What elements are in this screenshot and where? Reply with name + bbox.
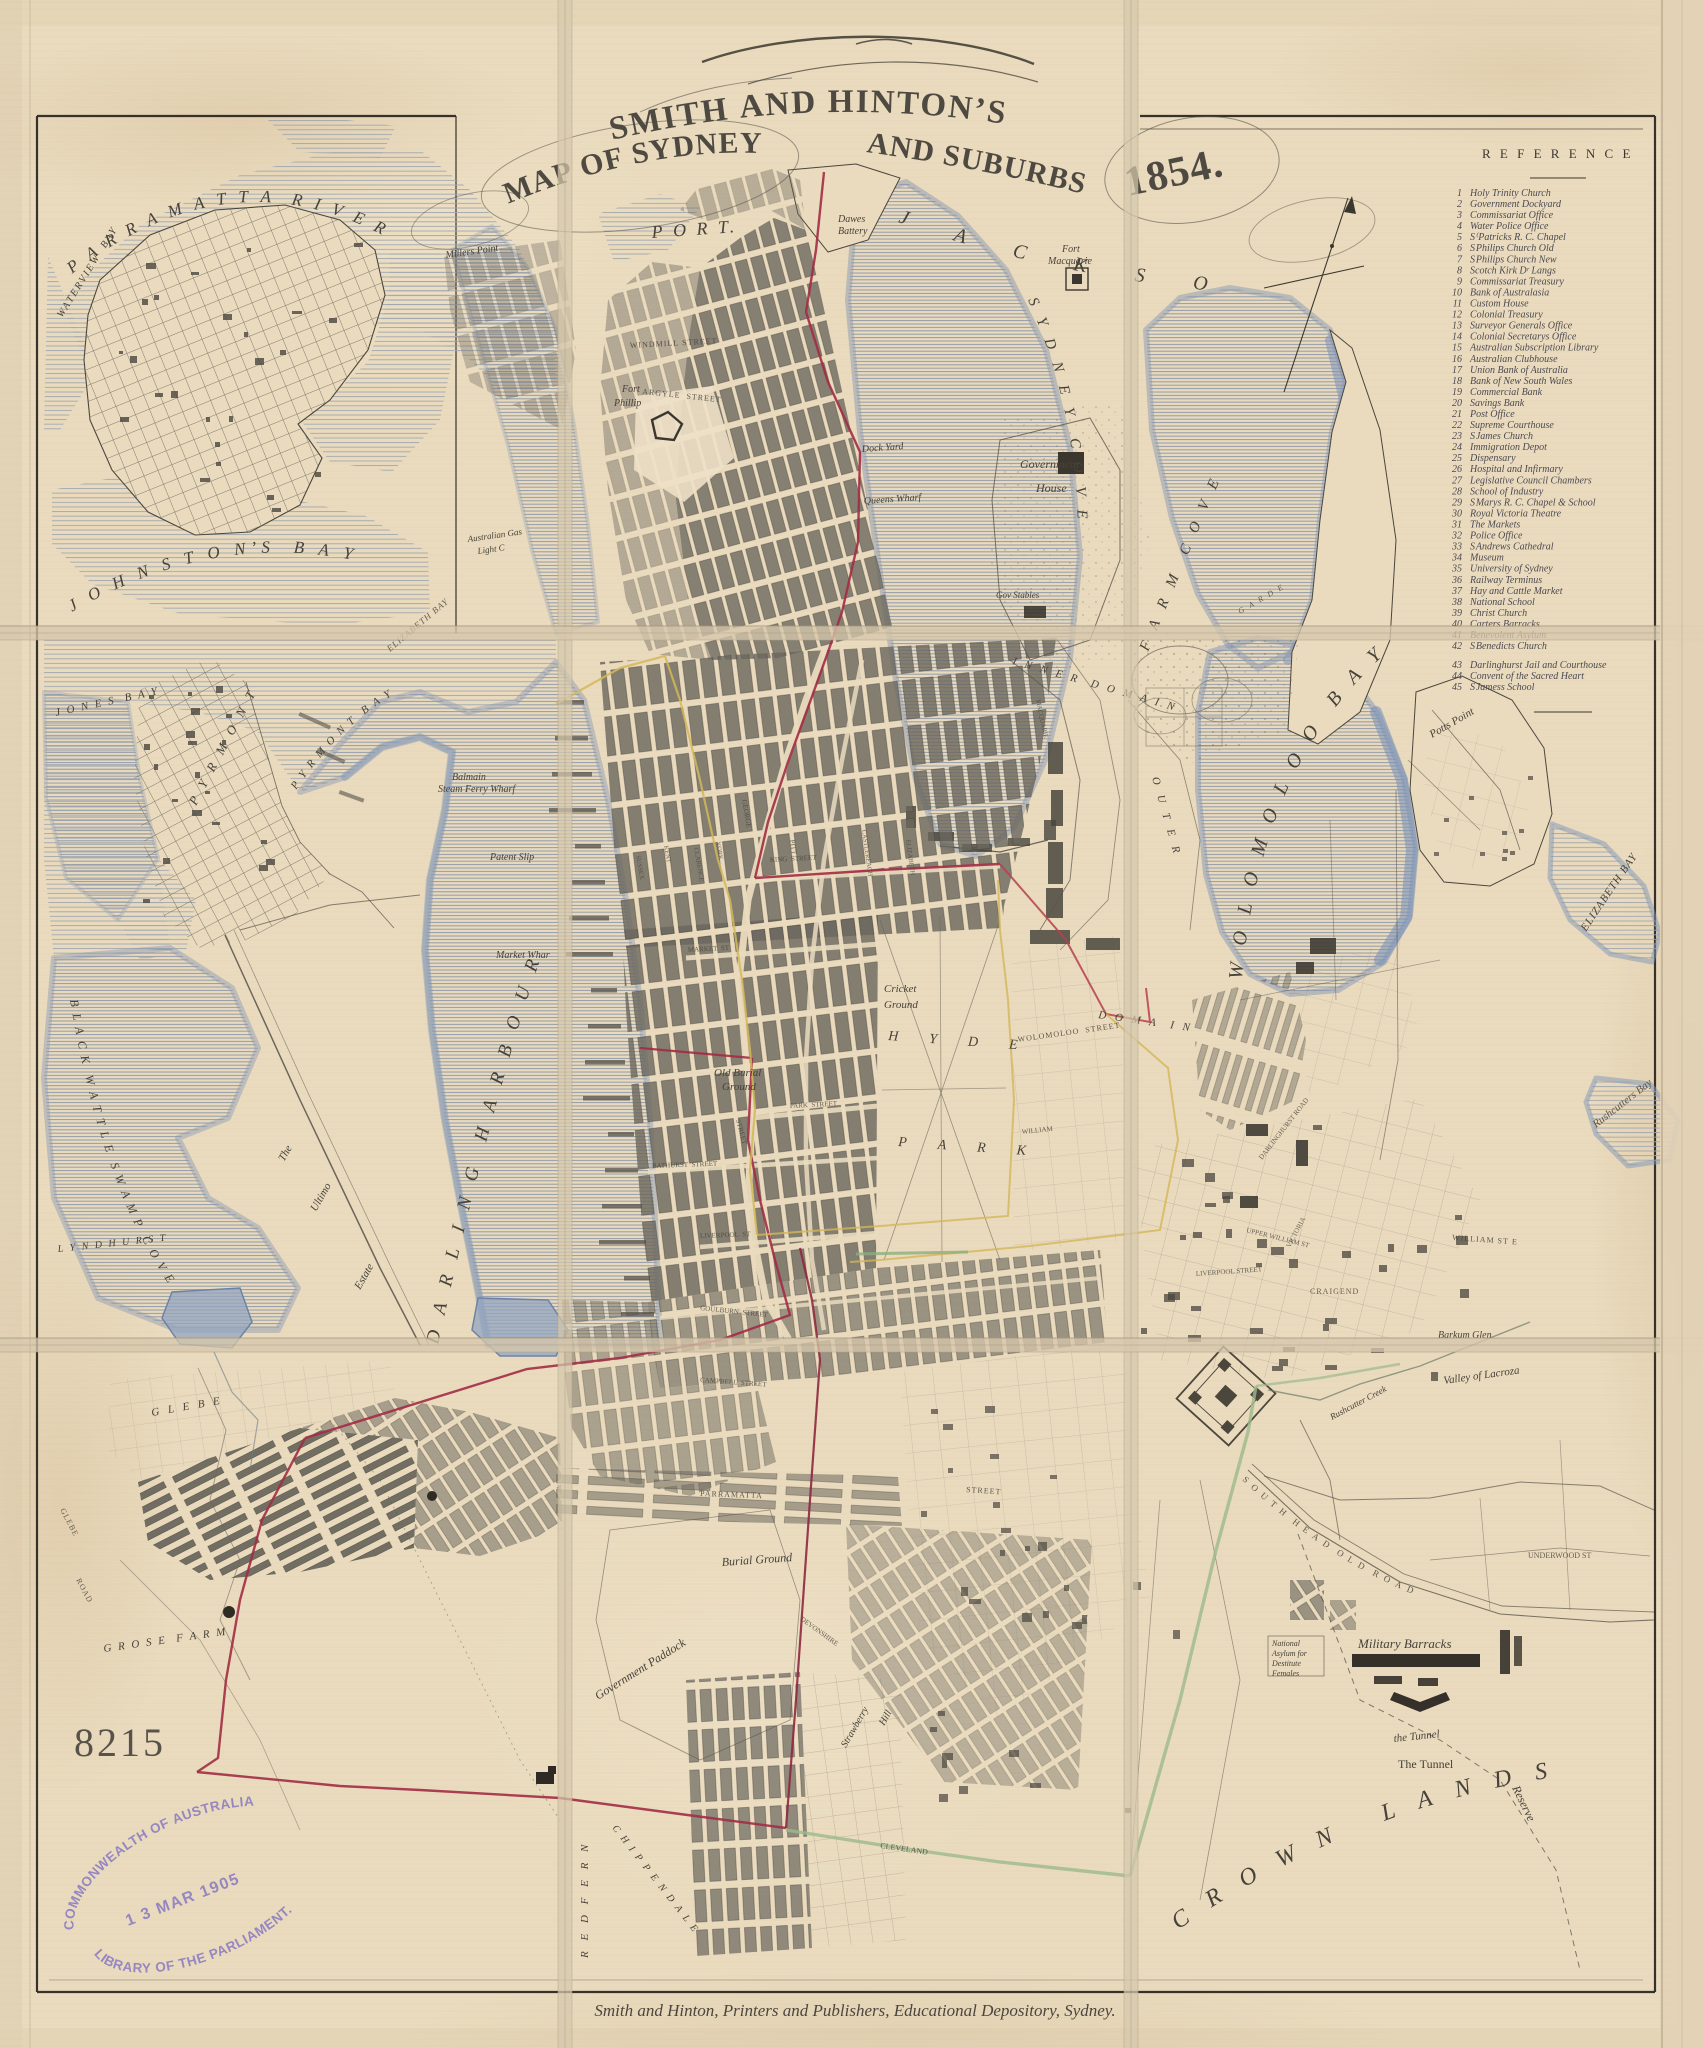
svg-text:Surveyor Generals Office: Surveyor Generals Office xyxy=(1470,321,1573,332)
svg-text:27: 27 xyxy=(1452,475,1463,486)
svg-text:13: 13 xyxy=(1452,321,1462,332)
svg-text:8215: 8215 xyxy=(74,1720,166,1765)
svg-text:Scotch Kirk Dʳ Langs: Scotch Kirk Dʳ Langs xyxy=(1470,265,1556,276)
svg-text:45: 45 xyxy=(1452,682,1462,693)
svg-text:S Andrews Cathedral: S Andrews Cathedral xyxy=(1470,542,1554,553)
svg-text:S⁽ Patricks R. C. Chapel: S⁽ Patricks R. C. Chapel xyxy=(1470,232,1566,243)
svg-text:Colonial Treasury: Colonial Treasury xyxy=(1470,310,1543,321)
svg-text:Dispensary: Dispensary xyxy=(1469,453,1516,464)
svg-text:Post Office: Post Office xyxy=(1469,409,1515,420)
svg-text:Balmain: Balmain xyxy=(452,772,486,783)
svg-text:Ground: Ground xyxy=(722,1081,756,1093)
svg-text:26: 26 xyxy=(1452,464,1462,475)
svg-text:Gov Stables: Gov Stables xyxy=(996,590,1040,600)
svg-text:House: House xyxy=(1035,481,1067,495)
svg-text:Legislative Council Chambers: Legislative Council Chambers xyxy=(1469,475,1592,486)
svg-text:16: 16 xyxy=(1452,354,1462,365)
svg-text:Government Dockyard: Government Dockyard xyxy=(1470,199,1562,210)
svg-text:Supreme Courthouse: Supreme Courthouse xyxy=(1470,420,1554,431)
svg-text:Commissariat Office: Commissariat Office xyxy=(1470,210,1554,221)
svg-text:Ground: Ground xyxy=(884,999,918,1011)
svg-text:28: 28 xyxy=(1452,486,1462,497)
svg-text:Convent of the Sacred Heart: Convent of the Sacred Heart xyxy=(1470,671,1584,682)
svg-text:34: 34 xyxy=(1451,553,1462,564)
svg-text:Smith and Hinton, Printers and: Smith and Hinton, Printers and Publisher… xyxy=(594,2001,1115,2020)
svg-text:R E D F E R N: R E D F E R N xyxy=(579,1841,591,1959)
svg-text:Commissariat Treasury: Commissariat Treasury xyxy=(1470,276,1564,287)
svg-text:42: 42 xyxy=(1452,641,1462,652)
svg-text:Police Office: Police Office xyxy=(1469,531,1523,542)
svg-text:S Marys R. C. Chapel & School: S Marys R. C. Chapel & School xyxy=(1470,497,1596,508)
svg-text:38: 38 xyxy=(1451,597,1462,608)
svg-text:4: 4 xyxy=(1457,221,1462,232)
svg-text:Phillip: Phillip xyxy=(613,398,641,409)
svg-text:Water Police Office: Water Police Office xyxy=(1470,221,1549,232)
svg-text:Battery: Battery xyxy=(838,226,868,237)
svg-text:1: 1 xyxy=(1457,188,1462,199)
svg-text:Government: Government xyxy=(1020,457,1080,471)
svg-text:Holy Trinity Church: Holy Trinity Church xyxy=(1469,188,1551,199)
svg-text:Fort: Fort xyxy=(621,384,640,395)
svg-text:35: 35 xyxy=(1451,564,1462,575)
svg-text:S Jamess School: S Jamess School xyxy=(1470,682,1535,693)
svg-text:36: 36 xyxy=(1451,575,1462,586)
svg-text:Hospital and Infirmary: Hospital and Infirmary xyxy=(1469,464,1563,475)
svg-text:School of Industry: School of Industry xyxy=(1470,486,1544,497)
svg-text:2: 2 xyxy=(1457,199,1462,210)
svg-text:Dawes: Dawes xyxy=(837,214,865,225)
svg-text:23: 23 xyxy=(1452,431,1462,442)
svg-text:21: 21 xyxy=(1452,409,1462,420)
svg-text:8: 8 xyxy=(1457,265,1462,276)
svg-text:20: 20 xyxy=(1452,398,1462,409)
svg-text:National: National xyxy=(1271,1639,1301,1648)
svg-text:Cricket: Cricket xyxy=(884,983,917,995)
svg-text:Steam Ferry Wharf: Steam Ferry Wharf xyxy=(438,784,516,795)
svg-text:11: 11 xyxy=(1453,299,1462,310)
svg-text:The Tunnel: The Tunnel xyxy=(1398,1757,1454,1771)
svg-text:15: 15 xyxy=(1452,343,1462,354)
svg-text:Australian Subscription Librar: Australian Subscription Library xyxy=(1469,343,1599,354)
svg-text:39: 39 xyxy=(1451,608,1462,619)
svg-text:Fort: Fort xyxy=(1061,244,1080,255)
svg-text:32: 32 xyxy=(1451,531,1462,542)
svg-text:3: 3 xyxy=(1456,210,1462,221)
svg-text:30: 30 xyxy=(1451,509,1462,520)
svg-text:Macquarie: Macquarie xyxy=(1047,256,1092,267)
svg-text:Bank of Australasia: Bank of Australasia xyxy=(1470,287,1549,298)
svg-text:Museum: Museum xyxy=(1469,553,1504,564)
svg-text:National School: National School xyxy=(1469,597,1535,608)
svg-text:33: 33 xyxy=(1451,542,1462,553)
svg-text:Market Whar: Market Whar xyxy=(495,950,550,961)
svg-text:Commercial Bank: Commercial Bank xyxy=(1470,387,1543,398)
svg-text:22: 22 xyxy=(1452,420,1462,431)
svg-text:Military Barracks: Military Barracks xyxy=(1357,1636,1452,1651)
svg-text:Royal Victoria Theatre: Royal Victoria Theatre xyxy=(1469,509,1562,520)
svg-text:43: 43 xyxy=(1452,660,1462,671)
svg-text:29: 29 xyxy=(1452,497,1462,508)
svg-text:Union Bank of Australia: Union Bank of Australia xyxy=(1470,365,1568,376)
svg-text:14: 14 xyxy=(1452,332,1462,343)
svg-text:6: 6 xyxy=(1457,243,1462,254)
svg-text:44: 44 xyxy=(1452,671,1462,682)
svg-text:R E F E R E N C E: R E F E R E N C E xyxy=(1482,146,1633,161)
svg-text:9: 9 xyxy=(1457,276,1462,287)
svg-text:18: 18 xyxy=(1452,376,1462,387)
svg-text:10: 10 xyxy=(1452,287,1462,298)
svg-text:17: 17 xyxy=(1452,365,1463,376)
svg-text:Bank of New South Wales: Bank of New South Wales xyxy=(1470,376,1573,387)
svg-text:25: 25 xyxy=(1452,453,1462,464)
svg-text:Hay and Cattle Market: Hay and Cattle Market xyxy=(1469,586,1563,597)
svg-text:University of Sydney: University of Sydney xyxy=(1470,564,1553,575)
svg-text:S James Church: S James Church xyxy=(1470,431,1533,442)
svg-text:Savings Bank: Savings Bank xyxy=(1470,398,1525,409)
svg-text:Females: Females xyxy=(1271,1669,1299,1678)
svg-text:19: 19 xyxy=(1452,387,1462,398)
svg-text:Custom House: Custom House xyxy=(1470,299,1529,310)
svg-text:UNDERWOOD ST: UNDERWOOD ST xyxy=(1528,1551,1591,1560)
svg-text:Old Burial: Old Burial xyxy=(714,1067,761,1079)
svg-text:5: 5 xyxy=(1457,232,1462,243)
svg-text:Destitute: Destitute xyxy=(1271,1659,1301,1668)
svg-text:Darlinghurst Jail and Courthou: Darlinghurst Jail and Courthouse xyxy=(1469,660,1607,671)
svg-text:31: 31 xyxy=(1451,520,1462,531)
svg-text:Patent Slip: Patent Slip xyxy=(489,852,534,863)
svg-text:Christ Church: Christ Church xyxy=(1470,608,1527,619)
svg-text:The Markets: The Markets xyxy=(1470,520,1520,531)
svg-text:Railway Terminus: Railway Terminus xyxy=(1469,575,1542,586)
svg-text:Asylum for: Asylum for xyxy=(1271,1649,1308,1658)
svg-text:Colonial Secretarys Office: Colonial Secretarys Office xyxy=(1470,332,1577,343)
svg-text:S Benedicts Church: S Benedicts Church xyxy=(1470,641,1547,652)
svg-text:12: 12 xyxy=(1452,310,1462,321)
svg-text:S Philips Church New: S Philips Church New xyxy=(1470,254,1557,265)
svg-text:24: 24 xyxy=(1452,442,1462,453)
svg-text:Australian Clubhouse: Australian Clubhouse xyxy=(1469,354,1558,365)
svg-text:S Philips Church Old: S Philips Church Old xyxy=(1470,243,1555,254)
svg-text:37: 37 xyxy=(1451,586,1463,597)
svg-text:Immigration Depot: Immigration Depot xyxy=(1469,442,1547,453)
svg-text:CRAIGEND: CRAIGEND xyxy=(1310,1287,1359,1296)
